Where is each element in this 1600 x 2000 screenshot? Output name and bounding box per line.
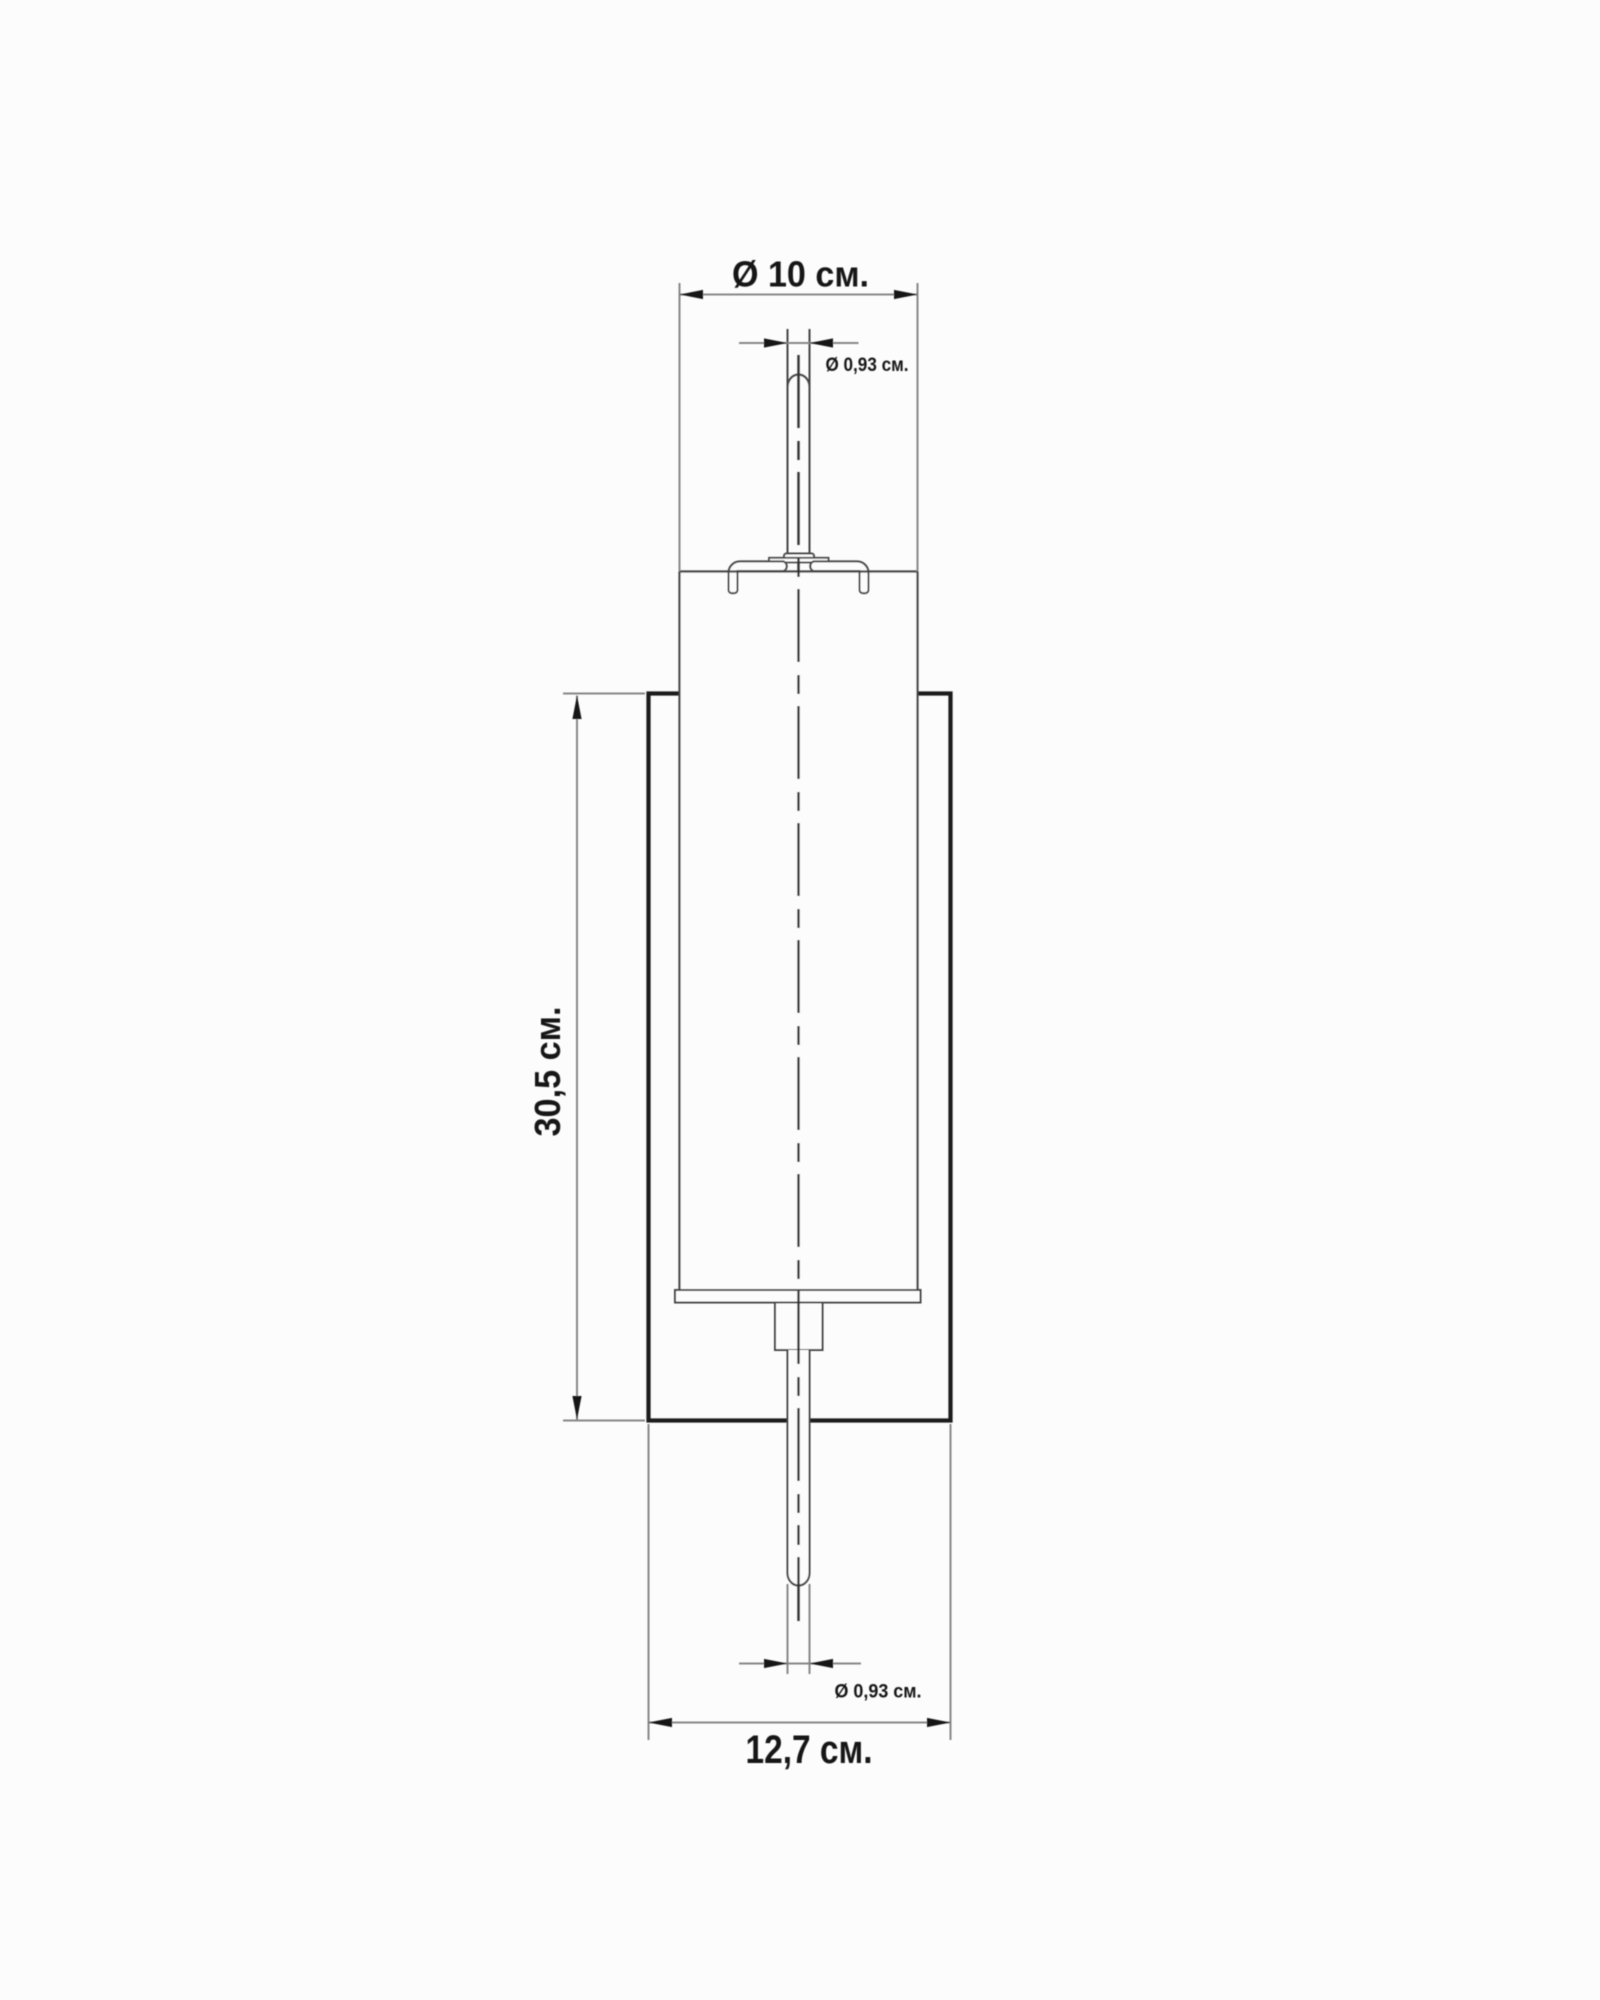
svg-text:30,5 см.: 30,5 см. — [527, 1007, 568, 1137]
svg-text:Ø 10 см.: Ø 10 см. — [732, 254, 869, 295]
svg-text:Ø 0,93 см.: Ø 0,93 см. — [826, 354, 909, 376]
svg-text:Ø 0,93 см.: Ø 0,93 см. — [835, 1681, 922, 1703]
svg-text:12,7 см.: 12,7 см. — [746, 1728, 873, 1772]
